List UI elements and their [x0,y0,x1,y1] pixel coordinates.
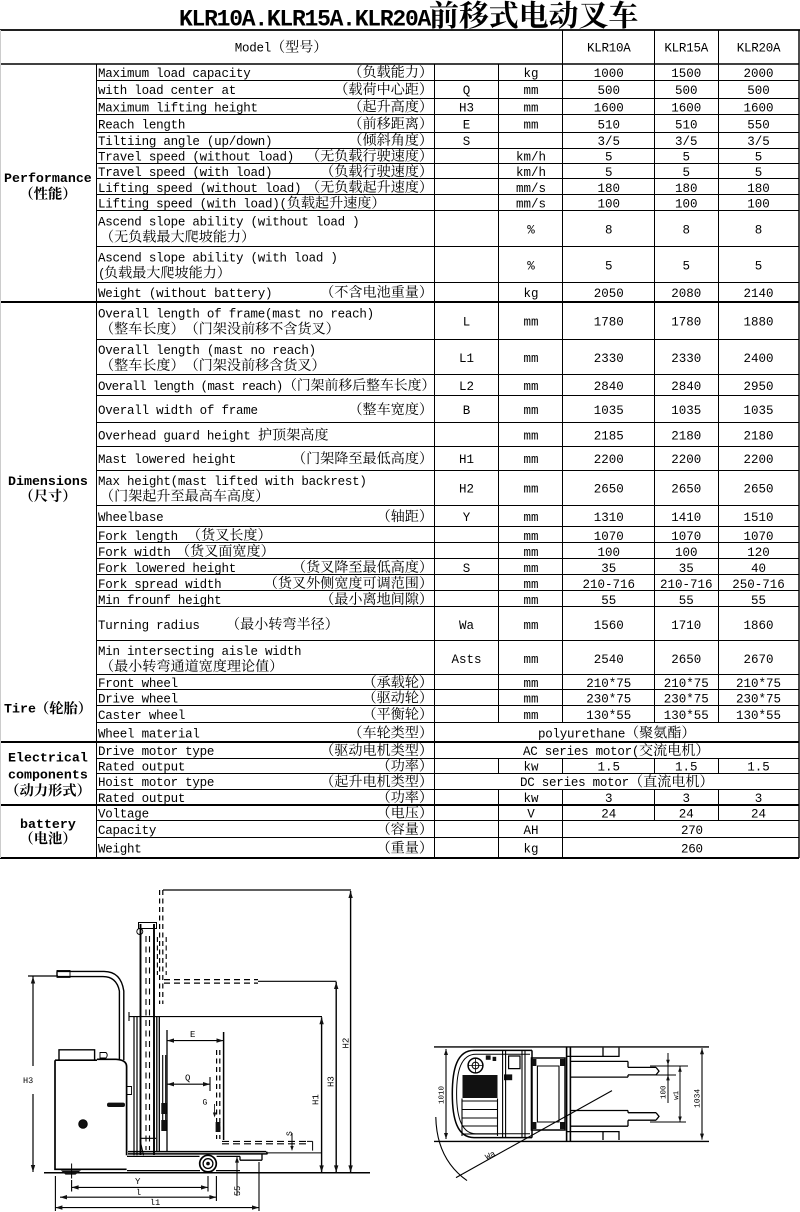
svg-text:Front wheel: Front wheel [98,677,178,691]
svg-text:Ascend slope ability (without: Ascend slope ability (without load ) [98,216,359,230]
svg-text:1.5: 1.5 [747,761,770,775]
svg-text:mm: mm [523,546,538,560]
svg-text:mm: mm [523,315,538,329]
svg-text:1000: 1000 [594,67,624,81]
svg-text:55: 55 [601,594,616,608]
svg-text:mm/s: mm/s [516,182,546,196]
svg-text:Performance: Performance [4,171,92,186]
svg-text:mm: mm [523,692,538,706]
svg-text:210*75: 210*75 [736,677,781,691]
svg-text:3/5: 3/5 [598,135,621,149]
svg-text:Caster wheel: Caster wheel [98,709,185,723]
svg-text:230*75: 230*75 [736,692,781,706]
svg-text:mm: mm [523,352,538,366]
svg-text:Ascend slope ability (with loa: Ascend slope ability (with load ) [98,252,338,266]
svg-text:55: 55 [751,594,766,608]
svg-text:Hoist motor type: Hoist motor type [98,776,214,790]
svg-text:130*55: 130*55 [586,709,631,723]
svg-text:2650: 2650 [743,483,773,497]
svg-text:mm: mm [523,511,538,525]
svg-text:3/5: 3/5 [675,135,698,149]
svg-text:KLR10A: KLR10A [587,42,631,56]
svg-text:2650: 2650 [671,483,701,497]
svg-text:1510: 1510 [743,511,773,525]
svg-text:210*75: 210*75 [586,677,631,691]
svg-text:mm: mm [523,453,538,467]
svg-text:210-716: 210-716 [583,578,636,592]
svg-text:L: L [463,315,471,329]
svg-text:kg: kg [523,67,538,81]
svg-text:5: 5 [682,166,690,180]
svg-text:Lifting speed (with load)(: Lifting speed (with load)( [98,198,287,212]
svg-text:180: 180 [747,182,770,196]
svg-text:210-716: 210-716 [660,578,713,592]
svg-text:mm: mm [523,380,538,394]
svg-text:mm: mm [523,578,538,592]
svg-text:2200: 2200 [671,453,701,467]
svg-text:km/h: km/h [516,166,546,180]
svg-text:Lifting speed (without load): Lifting speed (without load) [98,182,301,196]
svg-text:1780: 1780 [671,315,701,329]
svg-text:5: 5 [755,151,763,165]
svg-text:2650: 2650 [671,653,701,667]
svg-text:Travel speed (without load): Travel speed (without load) [98,151,294,165]
svg-text:Tire: Tire [4,702,36,717]
svg-text:2670: 2670 [743,653,773,667]
svg-text:Maximum load capacity: Maximum load capacity [98,67,251,81]
svg-text:KLR10A.KLR15A.KLR20A: KLR10A.KLR15A.KLR20A [179,7,431,33]
svg-text:Asts: Asts [451,653,481,667]
svg-text:Drive wheel: Drive wheel [98,692,178,706]
svg-text:%: % [527,223,535,237]
svg-text:230*75: 230*75 [586,692,631,706]
svg-text:100: 100 [675,198,698,212]
svg-text:1310: 1310 [594,511,624,525]
svg-text:S: S [463,562,471,576]
svg-text:120: 120 [747,546,770,560]
svg-text:2200: 2200 [743,453,773,467]
svg-text:1780: 1780 [594,315,624,329]
svg-text:3/5: 3/5 [747,135,770,149]
svg-text:2650: 2650 [594,483,624,497]
svg-text:510: 510 [598,118,621,132]
svg-text:2330: 2330 [594,352,624,366]
svg-text:Fork spread width: Fork spread width [98,578,221,592]
svg-text:5: 5 [605,259,613,273]
svg-text:mm: mm [523,101,538,115]
svg-text:8: 8 [755,223,763,237]
svg-text:24: 24 [679,808,694,822]
svg-text:2400: 2400 [743,352,773,366]
svg-text:Dimensions: Dimensions [8,474,88,489]
svg-text:Overall length (mast reach): Overall length (mast reach) [98,380,283,394]
svg-text:H1: H1 [459,453,474,467]
svg-text:8: 8 [682,223,690,237]
svg-text:500: 500 [747,84,770,98]
svg-text:260: 260 [681,843,703,857]
svg-text:100: 100 [747,198,770,212]
svg-text:mm: mm [523,562,538,576]
svg-text:Fork width: Fork width [98,546,171,560]
svg-text:2840: 2840 [671,380,701,394]
svg-text:mm: mm [523,709,538,723]
svg-text:battery: battery [20,817,76,832]
svg-text:130*55: 130*55 [736,709,781,723]
svg-text:2840: 2840 [594,380,624,394]
svg-text:%: % [527,259,535,273]
svg-text:2050: 2050 [594,287,624,301]
svg-text:100: 100 [675,546,698,560]
svg-text:components: components [8,768,88,783]
svg-text:1860: 1860 [743,619,773,633]
svg-text:500: 500 [598,84,621,98]
svg-text:2185: 2185 [594,430,624,444]
svg-text:Electrical: Electrical [8,751,88,766]
svg-text:Rated output: Rated output [98,761,185,775]
svg-text:L1: L1 [459,352,474,366]
svg-text:polyurethane: polyurethane [538,727,625,741]
svg-text:Y: Y [463,511,471,525]
svg-text:270: 270 [681,824,703,838]
svg-text:Max height(mast lifted with ba: Max height(mast lifted with backrest) [98,475,367,489]
svg-text:100: 100 [598,198,621,212]
svg-text:2000: 2000 [743,67,773,81]
svg-text:DC series motor: DC series motor [520,776,629,790]
svg-text:Voltage: Voltage [98,808,149,822]
svg-text:KLR15A: KLR15A [664,42,708,56]
svg-text:500: 500 [675,84,698,98]
svg-text:mm/s: mm/s [516,198,546,212]
svg-text:1500: 1500 [671,67,701,81]
svg-text:mm: mm [523,619,538,633]
svg-text:1070: 1070 [743,530,773,544]
svg-text:24: 24 [601,808,616,822]
svg-text:kw: kw [523,761,539,775]
svg-text:mm: mm [523,594,538,608]
svg-text:Q: Q [463,84,471,98]
svg-text:5: 5 [755,259,763,273]
svg-text:1070: 1070 [671,530,701,544]
svg-text:(: ( [98,267,105,281]
svg-text:510: 510 [675,118,698,132]
svg-text:Wheelbase: Wheelbase [98,511,163,525]
svg-text:Model: Model [235,42,271,56]
svg-text:24: 24 [751,808,766,822]
svg-text:mm: mm [523,84,538,98]
svg-text:Weight (without battery): Weight (without battery) [98,287,272,301]
svg-text:Travel speed (with load): Travel speed (with load) [98,166,272,180]
svg-text:3: 3 [605,792,613,806]
svg-text:1.5: 1.5 [675,761,698,775]
svg-text:Rated output: Rated output [98,792,185,806]
svg-text:mm: mm [523,677,538,691]
svg-text:mm: mm [523,430,538,444]
svg-text:Min intersecting aisle width: Min intersecting aisle width [98,645,301,659]
svg-text:V: V [527,808,535,822]
svg-text:Fork lowered height: Fork lowered height [98,562,236,576]
svg-text:mm: mm [523,530,538,544]
svg-text:180: 180 [675,182,698,196]
svg-text:2180: 2180 [743,430,773,444]
svg-text:Mast lowered height: Mast lowered height [98,453,236,467]
svg-text:35: 35 [679,562,694,576]
svg-text:55: 55 [679,594,694,608]
svg-text:Capacity: Capacity [98,824,157,838]
svg-text:1600: 1600 [594,101,624,115]
svg-text:kg: kg [523,843,538,857]
svg-text:mm: mm [523,483,538,497]
svg-text:3: 3 [682,792,690,806]
svg-text:AH: AH [523,824,538,838]
svg-text:1035: 1035 [594,404,624,418]
svg-text:2330: 2330 [671,352,701,366]
svg-text:100: 100 [598,546,621,560]
svg-text:2950: 2950 [743,380,773,394]
svg-text:250-716: 250-716 [732,578,785,592]
svg-text:kw: kw [523,792,539,806]
svg-text:KLR20A: KLR20A [737,42,781,56]
svg-text:mm: mm [523,653,538,667]
svg-text:1560: 1560 [594,619,624,633]
svg-text:8: 8 [605,223,613,237]
svg-text:H3: H3 [459,101,474,115]
svg-text:5: 5 [682,259,690,273]
svg-text:2200: 2200 [594,453,624,467]
svg-text:550: 550 [747,118,770,132]
svg-text:2080: 2080 [671,287,701,301]
svg-text:1410: 1410 [671,511,701,525]
svg-text:Reach length: Reach length [98,118,185,132]
svg-text:AC series motor(: AC series motor( [523,745,639,759]
svg-text:Wheel material: Wheel material [98,727,200,741]
svg-text:1710: 1710 [671,619,701,633]
svg-text:Overhead guard height: Overhead guard height [98,430,251,444]
svg-text:1070: 1070 [594,530,624,544]
svg-text:1600: 1600 [743,101,773,115]
svg-text:Tiltiing angle (up/down): Tiltiing angle (up/down) [98,135,272,149]
svg-text:2180: 2180 [671,430,701,444]
svg-text:Turning radius: Turning radius [98,619,200,633]
svg-text:with load center at: with load center at [98,84,236,98]
svg-text:Fork length: Fork length [98,530,178,544]
svg-text:Overall width of frame: Overall width of frame [98,404,258,418]
svg-text:E: E [463,118,471,132]
svg-text:5: 5 [605,151,613,165]
svg-text:180: 180 [598,182,621,196]
svg-text:1600: 1600 [671,101,701,115]
svg-text:km/h: km/h [516,151,546,165]
svg-text:Overall length of frame(mast n: Overall length of frame(mast no reach) [98,308,374,322]
svg-text:H2: H2 [459,483,474,497]
svg-text:5: 5 [605,166,613,180]
svg-text:1035: 1035 [743,404,773,418]
svg-text:L2: L2 [459,380,474,394]
svg-text:Overall length (mast no reach): Overall length (mast no reach) [98,344,316,358]
svg-text:Min frounf height: Min frounf height [98,594,221,608]
svg-text:2140: 2140 [743,287,773,301]
svg-text:2540: 2540 [594,653,624,667]
svg-text:S: S [463,135,471,149]
svg-text:kg: kg [523,287,538,301]
svg-text:Maximum lifting height: Maximum lifting height [98,101,258,115]
svg-text:B: B [463,404,471,418]
svg-text:Drive motor type: Drive motor type [98,745,214,759]
svg-text:5: 5 [682,151,690,165]
svg-text:Wa: Wa [459,619,475,633]
svg-text:1035: 1035 [671,404,701,418]
svg-text:Weight: Weight [98,843,142,857]
svg-text:1.5: 1.5 [598,761,621,775]
svg-text:230*75: 230*75 [664,692,709,706]
svg-text:130*55: 130*55 [664,709,709,723]
svg-text:mm: mm [523,404,538,418]
svg-text:mm: mm [523,118,538,132]
svg-text:35: 35 [601,562,616,576]
svg-text:40: 40 [751,562,766,576]
svg-text:1880: 1880 [743,315,773,329]
svg-text:3: 3 [755,792,763,806]
svg-text:210*75: 210*75 [664,677,709,691]
svg-text:5: 5 [755,166,763,180]
